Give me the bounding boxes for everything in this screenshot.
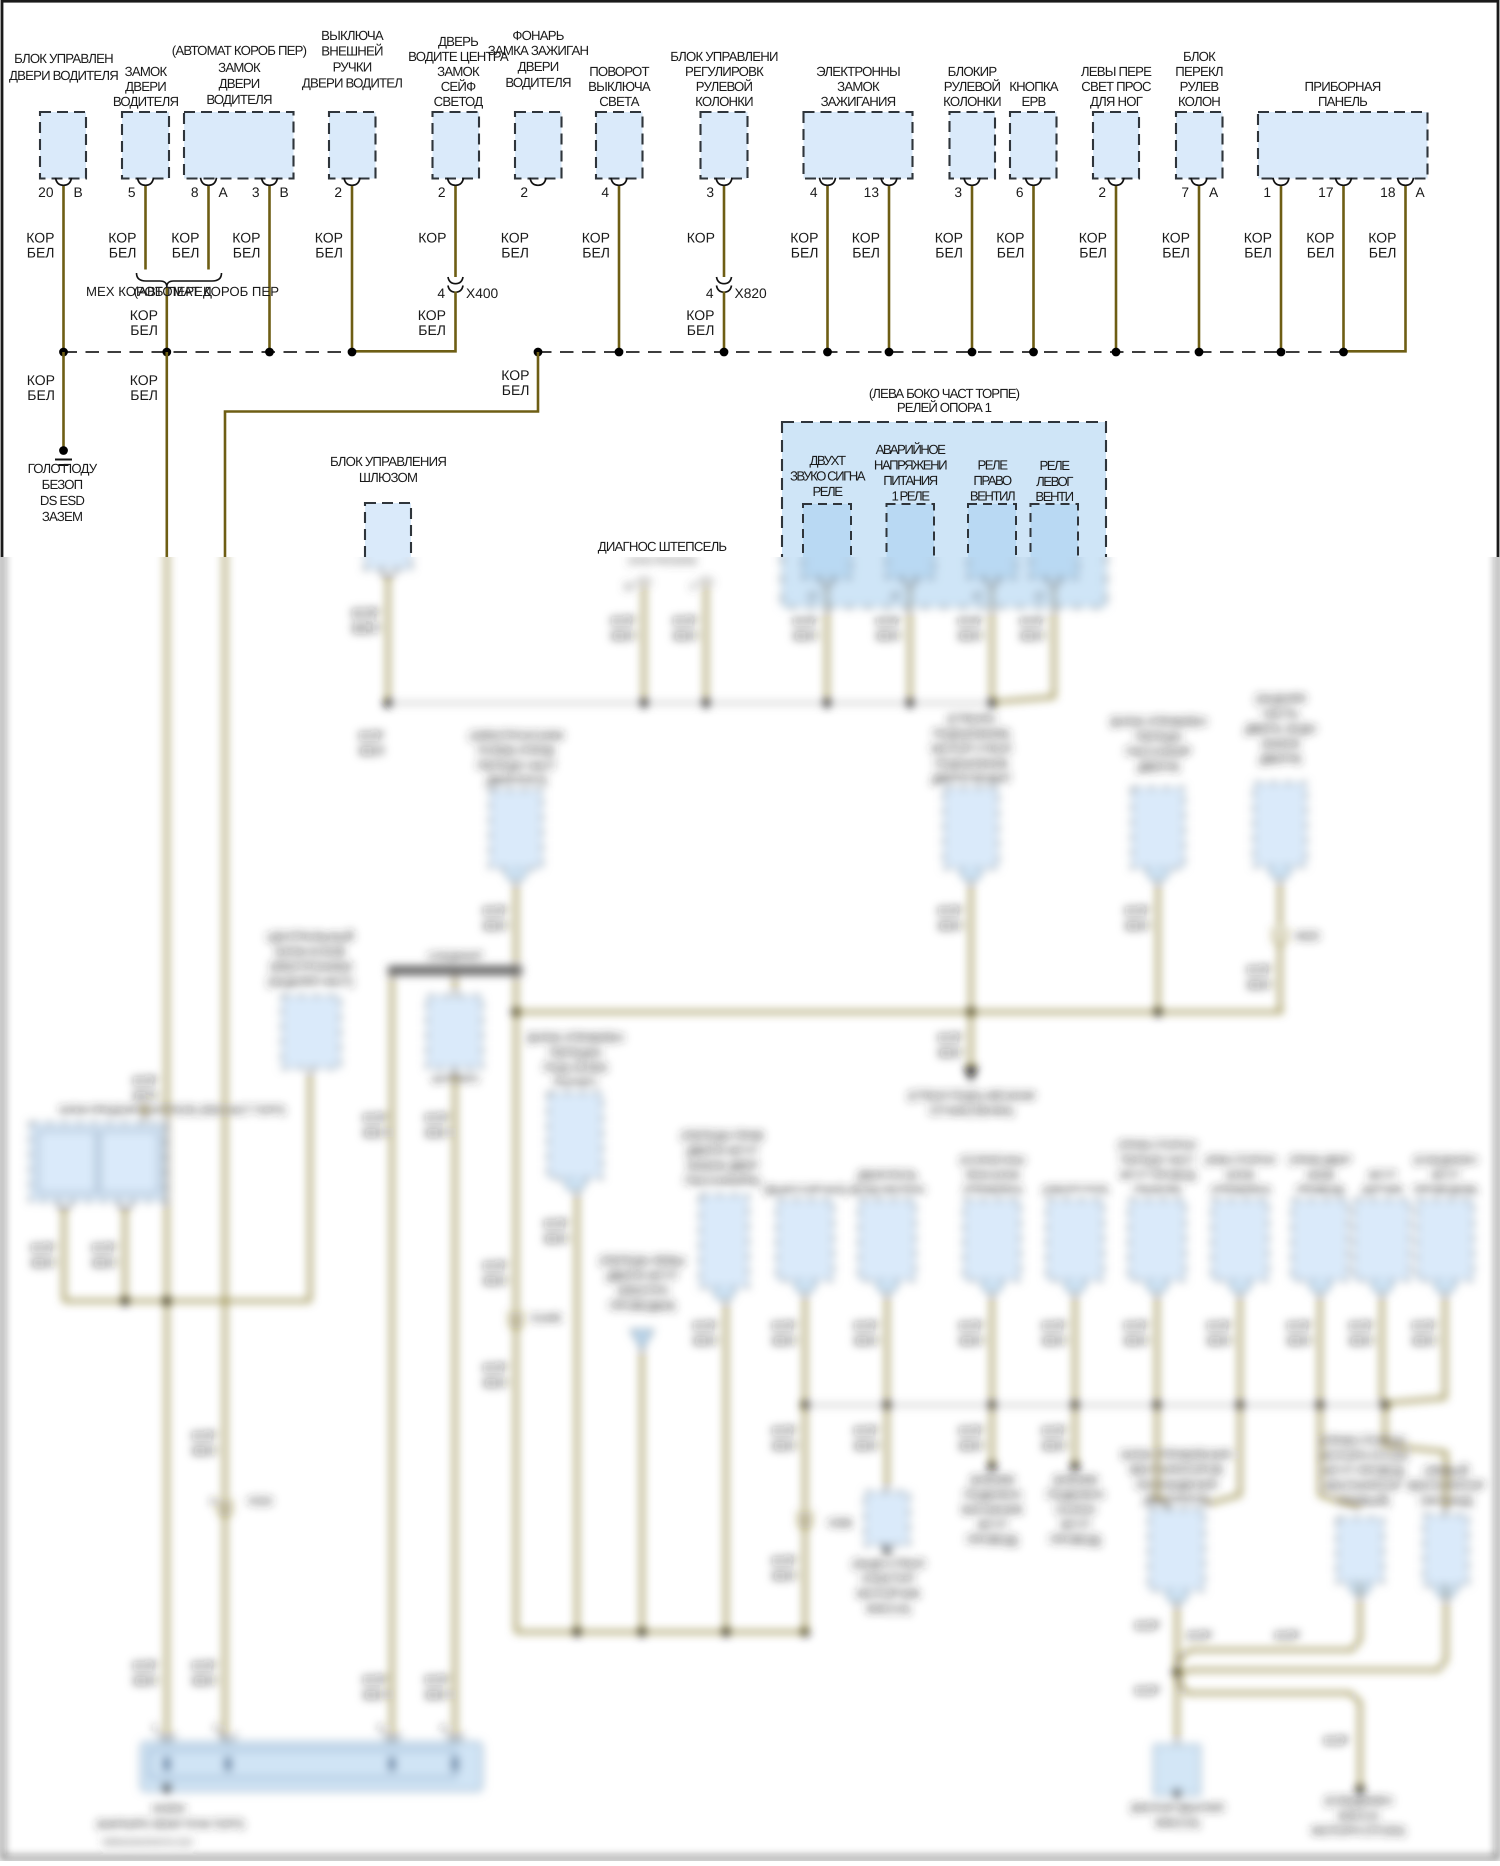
svg-text:X306: X306 <box>827 1516 853 1530</box>
svg-text:КОРБЕЛ: КОРБЕЛ <box>790 230 818 261</box>
svg-text:(МАРКИРО ЗЕМЛ ТОЧК ТОРП): (МАРКИРО ЗЕМЛ ТОЧК ТОРП) <box>97 1819 245 1831</box>
svg-text:КОРБЕЛ: КОРБЕЛ <box>1349 1319 1374 1348</box>
svg-text:КОРБЕЛ: КОРБЕЛ <box>483 1361 508 1390</box>
svg-text:КОРБЕЛ: КОРБЕЛ <box>501 230 529 261</box>
svg-text:КОРБЕЛ: КОРБЕЛ <box>1247 963 1272 992</box>
svg-text:КОРБЕЛ: КОРБЕЛ <box>359 729 384 758</box>
svg-text:КОРБЕЛ: КОРБЕЛ <box>935 230 963 261</box>
svg-text:КОРБЕЛ: КОРБЕЛ <box>876 614 901 643</box>
svg-text:WIRINGDIAGRAM RU 2022: WIRINGDIAGRAM RU 2022 <box>102 1837 193 1847</box>
svg-text:КОР: КОР <box>1187 1629 1212 1643</box>
svg-text:16: 16 <box>623 581 634 593</box>
svg-text:КОРБЕЛ: КОРБЕЛ <box>611 614 636 643</box>
svg-text:КОРБЕЛ: КОРБЕЛ <box>483 904 508 933</box>
svg-text:КОРБЕЛ: КОРБЕЛ <box>852 230 880 261</box>
svg-text:X1440: X1440 <box>530 1311 562 1325</box>
svg-text:КОРБЕЛ: КОРБЕЛ <box>959 1319 984 1348</box>
svg-text:КОРБЕЛ: КОРБЕЛ <box>996 230 1024 261</box>
svg-text:4: 4 <box>810 185 818 200</box>
svg-text:КОРБЕЛ: КОРБЕЛ <box>133 1074 158 1103</box>
svg-text:КОРБЕЛ: КОРБЕЛ <box>130 307 158 338</box>
svg-text:КОРБЕЛ: КОРБЕЛ <box>192 1659 217 1688</box>
svg-text:КОРБЕЛ: КОРБЕЛ <box>772 1424 797 1453</box>
svg-text:КОРБЕЛ: КОРБЕЛ <box>1244 230 1272 261</box>
svg-text:КОРБЕЛ: КОРБЕЛ <box>938 1031 963 1060</box>
svg-text:КОРБЕЛ: КОРБЕЛ <box>772 1554 797 1583</box>
svg-text:КОРБЕЛ: КОРБЕЛ <box>130 372 158 403</box>
svg-text:ЗАЗЕМ: ЗАЗЕМ <box>151 1803 185 1815</box>
svg-text:17: 17 <box>1318 185 1333 200</box>
svg-text:КОР: КОР <box>1324 1734 1349 1748</box>
svg-text:(ВЫКЛ СИГНАЛ): (ВЫКЛ СИГНАЛ) <box>764 1183 846 1197</box>
svg-text:КОРБЕЛ: КОРБЕЛ <box>352 605 380 636</box>
svg-text:4: 4 <box>601 185 609 200</box>
svg-text:87: 87 <box>891 591 902 603</box>
svg-text:КОРБЕЛ: КОРБЕЛ <box>92 1241 117 1270</box>
svg-text:87: 87 <box>1035 591 1046 603</box>
svg-text:2: 2 <box>1098 185 1106 200</box>
svg-text:КОРБЕЛ: КОРБЕЛ <box>192 1429 217 1458</box>
svg-text:КОРБЕЛ: КОРБЕЛ <box>1412 1319 1437 1348</box>
svg-text:КОРБЕЛ: КОРБЕЛ <box>938 904 963 933</box>
svg-text:КОРБЕЛ: КОРБЕЛ <box>108 230 136 261</box>
svg-text:87: 87 <box>973 591 984 603</box>
svg-text:КОРБЕЛ: КОРБЕЛ <box>544 1217 569 1246</box>
svg-text:2: 2 <box>438 185 446 200</box>
svg-text:КОР: КОР <box>1135 1619 1160 1633</box>
svg-text:2: 2 <box>213 1723 219 1735</box>
svg-text:БЛОК ПРЕДОХРАНИТ РЕЛЕ (ЛЕВ ЧАС: БЛОК ПРЕДОХРАНИТ РЕЛЕ (ЛЕВ ЧАСТ ТОРП) <box>59 1105 285 1117</box>
svg-text:РЕЛЕЛЕВОГВЕНТИ: РЕЛЕЛЕВОГВЕНТИ <box>1035 458 1073 504</box>
svg-text:КОРБЕЛ: КОРБЕЛ <box>1079 230 1107 261</box>
svg-text:КОРБЕЛ: КОРБЕЛ <box>854 1319 879 1348</box>
svg-text:5: 5 <box>128 185 136 200</box>
svg-text:КОРБЕЛ: КОРБЕЛ <box>26 230 54 261</box>
svg-text:3: 3 <box>706 185 714 200</box>
svg-text:КОРБЕЛ: КОРБЕЛ <box>1368 230 1396 261</box>
svg-text:КОРБЕЛ: КОРБЕЛ <box>772 1319 797 1348</box>
svg-text:ДИАГНОС ШТЕПСЕЛЬ: ДИАГНОС ШТЕПСЕЛЬ <box>598 539 727 554</box>
svg-text:ЛЕВЫ ПЕРЕСВЕТ ПРОСДЛЯ НОГ: ЛЕВЫ ПЕРЕСВЕТ ПРОСДЛЯ НОГ <box>1081 64 1152 109</box>
svg-text:1: 1 <box>1263 185 1271 200</box>
svg-text:X310: X310 <box>247 1494 273 1508</box>
svg-text:КОРБЕЛ: КОРБЕЛ <box>27 372 55 403</box>
svg-text:КОРБЕЛ: КОРБЕЛ <box>1042 1424 1067 1453</box>
svg-text:ДВИГАТЕЛЬВОЗД ЗАСЛОН: ДВИГАТЕЛЬВОЗД ЗАСЛОН <box>850 1168 925 1197</box>
svg-text:БЛОКИРРУЛЕВОЙКОЛОНКИ: БЛОКИРРУЛЕВОЙКОЛОНКИ <box>943 64 1001 109</box>
svg-text:6: 6 <box>1016 185 1024 200</box>
svg-text:КОРБЕЛ: КОРБЕЛ <box>959 1424 984 1453</box>
svg-text:КОРБЕЛ: КОРБЕЛ <box>958 614 983 643</box>
svg-text:КОРБЕЛ: КОРБЕЛ <box>133 1659 158 1688</box>
svg-text:КОРБЕЛ: КОРБЕЛ <box>1287 1319 1312 1348</box>
svg-text:(ПЕРЕДН ПРАВДВЕРИ ЖГУТЗАМОК ДВ: (ПЕРЕДН ПРАВДВЕРИ ЖГУТЗАМОК ДВЕРПАССАЖИР… <box>681 1129 764 1188</box>
svg-text:КОРБЕЛ: КОРБЕЛ <box>315 230 343 261</box>
svg-text:КОР: КОР <box>1275 1629 1300 1643</box>
svg-text:КОРБЕЛ: КОРБЕЛ <box>582 230 610 261</box>
svg-text:КОРБЕЛ: КОРБЕЛ <box>232 230 260 261</box>
svg-text:КОРБЕЛ: КОРБЕЛ <box>686 307 714 338</box>
svg-text:КОРБЕЛ: КОРБЕЛ <box>1020 614 1045 643</box>
svg-text:КОРБЕЛ: КОРБЕЛ <box>1162 230 1190 261</box>
svg-text:КОРБЕЛ: КОРБЕЛ <box>418 307 446 338</box>
svg-text:4: 4 <box>210 1496 216 1508</box>
svg-text:КОРБЕЛ: КОРБЕЛ <box>793 614 818 643</box>
svg-text:КОР: КОР <box>1135 1684 1160 1698</box>
svg-text:КОРБЕЛ: КОРБЕЛ <box>1306 230 1334 261</box>
svg-text:КОР: КОР <box>418 230 446 246</box>
svg-text:КОРБЕЛ: КОРБЕЛ <box>501 367 529 398</box>
svg-text:87: 87 <box>808 591 819 603</box>
svg-text:КОРБЕЛ: КОРБЕЛ <box>363 1673 388 1702</box>
svg-text:2: 2 <box>334 185 342 200</box>
svg-text:КОРБЕЛ: КОРБЕЛ <box>483 1259 508 1288</box>
svg-text:13: 13 <box>864 185 880 200</box>
svg-text:КОР: КОР <box>687 230 715 246</box>
svg-text:3: 3 <box>954 185 962 200</box>
svg-text:КОРБЕЛ: КОРБЕЛ <box>1207 1319 1232 1348</box>
svg-text:КОРБЕЛ: КОРБЕЛ <box>1042 1319 1067 1348</box>
svg-text:1: 1 <box>152 1723 158 1735</box>
svg-text:4: 4 <box>440 1723 446 1735</box>
svg-text:КОРБЕЛ: КОРБЕЛ <box>31 1241 56 1270</box>
svg-text:КОРБЕЛ: КОРБЕЛ <box>693 1319 718 1348</box>
svg-text:(ОБОГР РУЛ): (ОБОГР РУЛ) <box>1042 1183 1108 1197</box>
svg-text:КОРБЕЛ: КОРБЕЛ <box>1125 904 1150 933</box>
svg-text:КОРБЕЛ: КОРБЕЛ <box>171 230 199 261</box>
svg-text:КОРБЕЛ: КОРБЕЛ <box>673 614 698 643</box>
svg-text:X620: X620 <box>1294 929 1320 943</box>
svg-text:КОРБЕЛ: КОРБЕЛ <box>854 1424 879 1453</box>
svg-text:2: 2 <box>520 185 528 200</box>
svg-text:КОРБЕЛ: КОРБЕЛ <box>1124 1319 1149 1348</box>
svg-text:СОЕДИНИТ: СОЕДИНИТ <box>427 951 483 963</box>
svg-text:КОРБЕЛ: КОРБЕЛ <box>425 1111 450 1140</box>
svg-text:КОРБЕЛ: КОРБЕЛ <box>425 1673 450 1702</box>
svg-text:(СОЛНЕЧНЫЛЮК БЛОКУПРАВЛЕН): (СОЛНЕЧНЫЛЮК БЛОКУПРАВЛЕН) <box>960 1153 1025 1197</box>
svg-text:3: 3 <box>377 1723 383 1735</box>
svg-text:(АВТОМАТ КОРОБ ПЕР: (АВТОМАТ КОРОБ ПЕР <box>134 284 279 299</box>
svg-text:КОРБЕЛ: КОРБЕЛ <box>363 1111 388 1140</box>
